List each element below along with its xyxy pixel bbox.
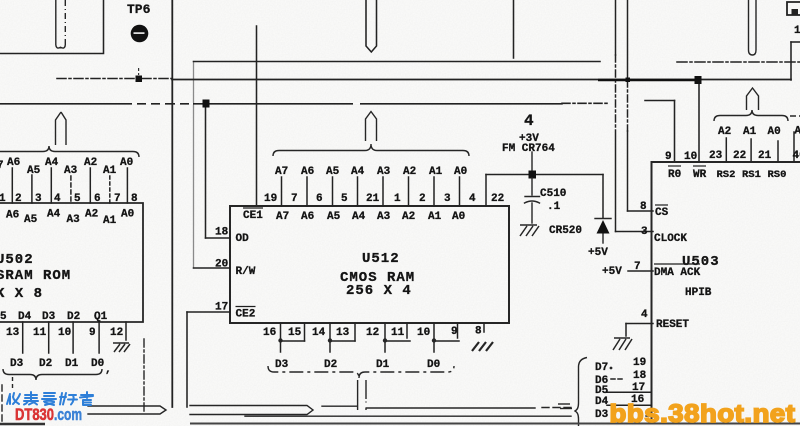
svg-text:CLOCK: CLOCK	[654, 233, 687, 245]
svg-text:A3: A3	[377, 166, 391, 178]
svg-text:16: 16	[263, 327, 276, 339]
svg-text:A0: A0	[120, 157, 133, 169]
svg-text:A1: A1	[428, 211, 442, 223]
svg-text:,: ,	[105, 364, 112, 376]
svg-text:+5V: +5V	[588, 247, 608, 259]
svg-text:D3: D3	[42, 311, 56, 323]
svg-text:U503: U503	[682, 254, 720, 270]
svg-text:8: 8	[640, 201, 647, 213]
svg-text:A: A	[795, 126, 800, 138]
svg-text:19: 19	[264, 193, 277, 205]
svg-text:6: 6	[94, 193, 101, 205]
svg-text:12: 12	[366, 327, 379, 339]
svg-text:D2: D2	[67, 311, 80, 323]
svg-text:+5V: +5V	[602, 266, 622, 278]
svg-text:A7: A7	[276, 211, 289, 223]
svg-text:7: 7	[114, 193, 121, 205]
svg-text:A0: A0	[768, 126, 781, 138]
svg-text:A1: A1	[103, 165, 117, 177]
svg-text:WR: WR	[693, 169, 707, 181]
svg-text:8: 8	[475, 326, 482, 338]
svg-text:18: 18	[633, 370, 647, 382]
svg-text:A4: A4	[351, 166, 365, 178]
svg-text:D3: D3	[10, 358, 24, 370]
svg-text:20: 20	[215, 259, 228, 271]
svg-text:11: 11	[391, 327, 405, 339]
svg-text:12: 12	[110, 327, 123, 339]
svg-text:D3: D3	[275, 359, 289, 371]
svg-text:A2: A2	[402, 211, 415, 223]
svg-text:40: 40	[793, 150, 800, 162]
svg-text:A2: A2	[84, 157, 97, 169]
svg-text:19: 19	[633, 357, 646, 369]
svg-text:23: 23	[709, 150, 723, 162]
svg-text:K X 8: K X 8	[0, 286, 43, 302]
svg-text:A0: A0	[454, 166, 467, 178]
svg-text:.1: .1	[547, 201, 561, 213]
svg-text:FM CR764: FM CR764	[502, 143, 555, 155]
svg-text:D0: D0	[427, 359, 440, 371]
svg-text:5: 5	[0, 311, 7, 323]
svg-text:A6: A6	[301, 166, 314, 178]
svg-text:9: 9	[451, 326, 458, 338]
svg-text:17: 17	[215, 302, 228, 314]
svg-text:11: 11	[33, 327, 47, 339]
svg-text:C510: C510	[540, 188, 566, 200]
svg-text:A4: A4	[47, 209, 61, 221]
svg-text:2: 2	[15, 193, 22, 205]
svg-text:A6: A6	[301, 211, 314, 223]
svg-text:8: 8	[131, 193, 138, 205]
svg-text:U502: U502	[0, 252, 34, 268]
svg-text:.com: .com	[54, 405, 82, 424]
svg-text:bbs.38hot.net: bbs.38hot.net	[610, 400, 796, 426]
svg-text:1: 1	[794, 25, 800, 37]
svg-text:A6: A6	[6, 210, 19, 222]
svg-text:7: 7	[634, 261, 641, 273]
svg-text:3: 3	[444, 193, 451, 205]
svg-text:13: 13	[336, 327, 350, 339]
svg-text:A3: A3	[64, 165, 78, 177]
svg-text:A1: A1	[103, 215, 117, 227]
svg-text:4: 4	[641, 309, 648, 321]
svg-text:21: 21	[758, 150, 772, 162]
svg-text:RS0: RS0	[768, 169, 787, 181]
svg-text:17: 17	[632, 382, 645, 394]
svg-text:15: 15	[288, 327, 302, 339]
svg-text:A4: A4	[45, 157, 59, 169]
svg-text:5: 5	[341, 193, 348, 205]
svg-text:U512: U512	[362, 251, 400, 267]
svg-text:A3: A3	[377, 211, 391, 223]
svg-text:10: 10	[417, 327, 430, 339]
svg-text:D4: D4	[18, 311, 32, 323]
svg-text:A2: A2	[718, 126, 731, 138]
svg-text:A3: A3	[67, 214, 81, 226]
svg-text:A5: A5	[24, 214, 38, 226]
svg-text:D7: D7	[595, 362, 608, 374]
svg-text:1: 1	[0, 193, 6, 205]
svg-text:4: 4	[54, 193, 61, 205]
svg-text:D3: D3	[595, 409, 609, 421]
svg-text:5: 5	[74, 193, 81, 205]
svg-text:3: 3	[35, 193, 42, 205]
svg-text:R0: R0	[668, 169, 681, 181]
svg-text:A5: A5	[327, 211, 341, 223]
svg-text:D2: D2	[39, 358, 52, 370]
svg-text:D0: D0	[91, 358, 104, 370]
svg-text:3: 3	[641, 226, 648, 238]
svg-text:A1: A1	[743, 126, 757, 138]
svg-text:R/W: R/W	[236, 266, 256, 278]
svg-text:A4: A4	[352, 211, 366, 223]
svg-text:1: 1	[394, 193, 401, 205]
svg-text:CE2: CE2	[236, 309, 256, 321]
svg-text:9: 9	[89, 327, 96, 339]
svg-text:D2: D2	[324, 359, 337, 371]
svg-text:7: 7	[291, 193, 298, 205]
svg-text:OD: OD	[236, 233, 250, 245]
svg-text:14: 14	[312, 327, 326, 339]
svg-text:21: 21	[366, 193, 380, 205]
svg-text:A6: A6	[7, 157, 20, 169]
svg-text:A5: A5	[326, 166, 340, 178]
svg-text:9: 9	[665, 151, 672, 163]
svg-text:RS1: RS1	[742, 169, 761, 181]
svg-text:SRAM ROM: SRAM ROM	[0, 268, 71, 284]
svg-text:22: 22	[733, 150, 746, 162]
svg-text:256 X 4: 256 X 4	[346, 283, 412, 299]
svg-text:D4: D4	[595, 396, 609, 408]
svg-text:RESET: RESET	[656, 319, 689, 331]
svg-text:TP6: TP6	[127, 2, 151, 17]
svg-text:A1: A1	[429, 166, 443, 178]
svg-text:13: 13	[6, 327, 20, 339]
svg-text:Q1: Q1	[94, 311, 108, 323]
svg-text:22: 22	[491, 193, 504, 205]
svg-text:10: 10	[684, 151, 697, 163]
svg-text:CR520: CR520	[549, 225, 582, 237]
svg-text:A5: A5	[27, 165, 41, 177]
svg-text:HPIB: HPIB	[685, 287, 712, 299]
svg-text:4: 4	[469, 193, 476, 205]
svg-text:4: 4	[524, 112, 534, 130]
svg-text:A7: A7	[275, 166, 288, 178]
svg-text:RS2: RS2	[717, 169, 736, 181]
svg-text:2: 2	[419, 193, 426, 205]
svg-text:18: 18	[215, 227, 229, 239]
svg-text:CE1: CE1	[243, 210, 263, 222]
svg-text:A2: A2	[85, 209, 98, 221]
svg-text:A0: A0	[452, 211, 465, 223]
svg-text:D1: D1	[65, 358, 79, 370]
svg-text:A2: A2	[403, 166, 416, 178]
svg-text:10: 10	[58, 327, 71, 339]
svg-text:DT830: DT830	[15, 405, 54, 424]
svg-text:CS: CS	[655, 207, 669, 219]
svg-text:7: 7	[0, 160, 4, 172]
svg-text:D1: D1	[376, 359, 390, 371]
svg-text:A0: A0	[121, 209, 134, 221]
svg-text:6: 6	[316, 193, 323, 205]
